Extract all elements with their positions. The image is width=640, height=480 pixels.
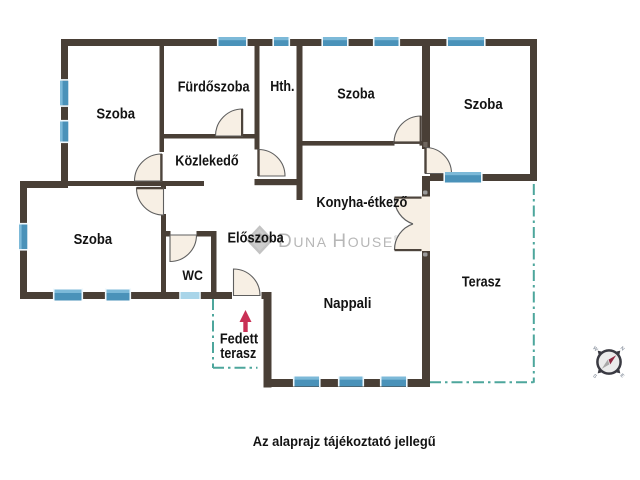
svg-text:Szoba: Szoba <box>74 231 113 248</box>
svg-text:Nappali: Nappali <box>324 295 372 312</box>
svg-text:Terasz: Terasz <box>462 274 501 291</box>
svg-text:Fürdőszoba: Fürdőszoba <box>178 79 250 96</box>
svg-text:Hth.: Hth. <box>270 78 294 95</box>
svg-text:Az alaprajz tájékoztató jelleg: Az alaprajz tájékoztató jellegű <box>253 433 436 449</box>
svg-text:DUNA HOUSE®: DUNA HOUSE® <box>278 231 401 252</box>
svg-text:Szoba: Szoba <box>464 96 503 113</box>
svg-text:Közlekedő: Közlekedő <box>175 152 238 169</box>
svg-text:Előszoba: Előszoba <box>228 230 285 247</box>
svg-text:Konyha-étkező: Konyha-étkező <box>316 194 407 211</box>
svg-text:WC: WC <box>182 268 203 283</box>
svg-text:terasz: terasz <box>220 345 256 362</box>
svg-text:Szoba: Szoba <box>337 86 375 103</box>
svg-text:Szoba: Szoba <box>96 106 135 123</box>
